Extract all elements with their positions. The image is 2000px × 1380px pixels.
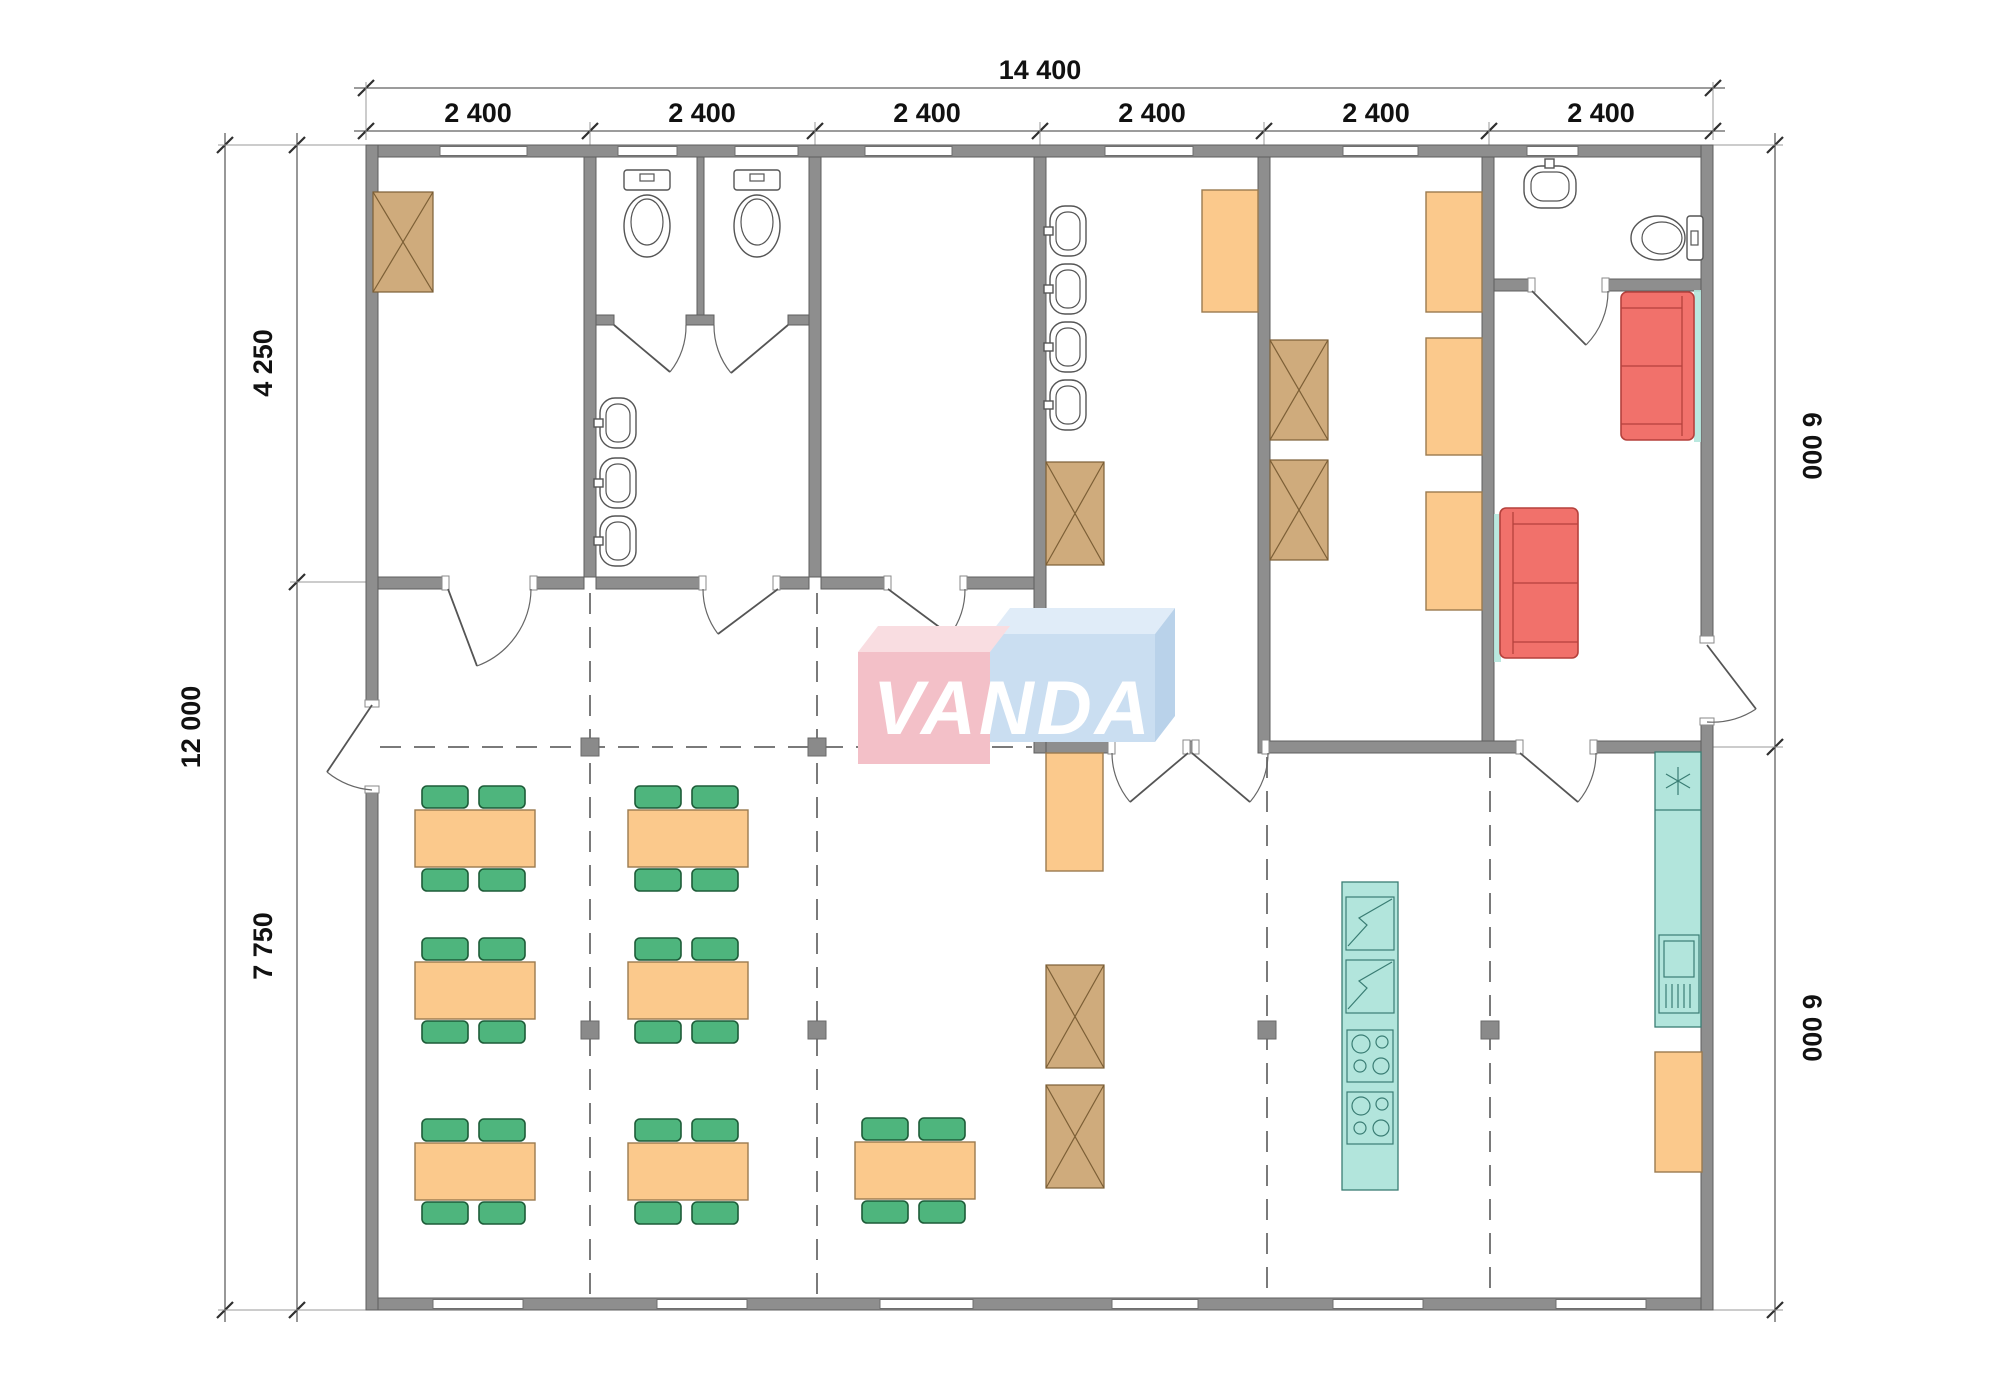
- dining-table-set: [628, 938, 748, 1043]
- dining-table-set: [415, 938, 535, 1043]
- dining-table-set: [415, 786, 535, 891]
- sofa: [1500, 508, 1578, 658]
- door-entrance-left: [327, 700, 379, 793]
- toilet: [624, 170, 670, 257]
- orange-unit: [1202, 190, 1258, 312]
- orange-unit: [1426, 338, 1482, 455]
- left-upper-label: 4 250: [248, 329, 278, 397]
- sink-row-washroom: [594, 398, 636, 566]
- right-lower-label: 6 000: [1797, 994, 1827, 1062]
- segment-label-3: 2 400: [893, 98, 961, 128]
- segment-label-2: 2 400: [668, 98, 736, 128]
- dining-table-set: [855, 1118, 975, 1223]
- door-room1: [442, 576, 537, 666]
- toilet: [734, 170, 780, 257]
- orange-unit: [1426, 192, 1482, 312]
- floor-plan-canvas: 14 400 2 400 2 400 2 400 2 400 2 400 2 4…: [0, 0, 2000, 1380]
- orange-unit: [1046, 753, 1103, 871]
- dining-table-set: [628, 786, 748, 891]
- segment-label-5: 2 400: [1342, 98, 1410, 128]
- wardrobe: [1270, 340, 1328, 440]
- kitchen-counter: [1655, 752, 1701, 1027]
- door-exit-right: [1700, 636, 1756, 725]
- toilet: [1631, 216, 1703, 260]
- wardrobe: [1046, 462, 1104, 565]
- door-wc-right: [1528, 278, 1609, 345]
- dimension-right: 6 000 6 000: [1767, 133, 1827, 1322]
- orange-unit: [1426, 492, 1482, 610]
- dimension-top-total: 14 400: [354, 55, 1725, 96]
- wardrobe: [1046, 1085, 1104, 1188]
- segment-label-4: 2 400: [1118, 98, 1186, 128]
- door-stall-left: [614, 325, 686, 372]
- segment-label-6: 2 400: [1567, 98, 1635, 128]
- door-washroom: [699, 576, 780, 634]
- left-total-label: 12 000: [176, 686, 206, 769]
- vanda-logo-text: VANDA: [873, 666, 1153, 751]
- wardrobe: [373, 192, 433, 292]
- left-lower-label: 7 750: [248, 912, 278, 980]
- vanda-logo: VANDA: [858, 608, 1175, 764]
- top-total-label: 14 400: [999, 55, 1082, 85]
- wardrobe: [1270, 460, 1328, 560]
- sink-wc-right: [1524, 159, 1576, 208]
- dimension-left-inner: 4 250 7 750: [248, 133, 305, 1322]
- door-stall-right: [714, 325, 788, 373]
- door-room5-hall: [1192, 740, 1269, 802]
- dining-table-set: [415, 1119, 535, 1224]
- floor-plan-drawing: 14 400 2 400 2 400 2 400 2 400 2 400 2 4…: [0, 0, 2000, 1380]
- door-lounge-hall: [1516, 740, 1597, 802]
- dimension-left-outer: 12 000: [176, 133, 233, 1322]
- segment-label-1: 2 400: [444, 98, 512, 128]
- wall-accent: [1694, 290, 1701, 442]
- orange-unit: [1655, 1052, 1702, 1172]
- wardrobe: [1046, 965, 1104, 1068]
- dining-table-set: [628, 1119, 748, 1224]
- sink-row-mudroom: [1044, 206, 1086, 430]
- sofa: [1621, 292, 1694, 440]
- right-upper-label: 6 000: [1797, 412, 1827, 480]
- kitchen-island: [1342, 882, 1398, 1190]
